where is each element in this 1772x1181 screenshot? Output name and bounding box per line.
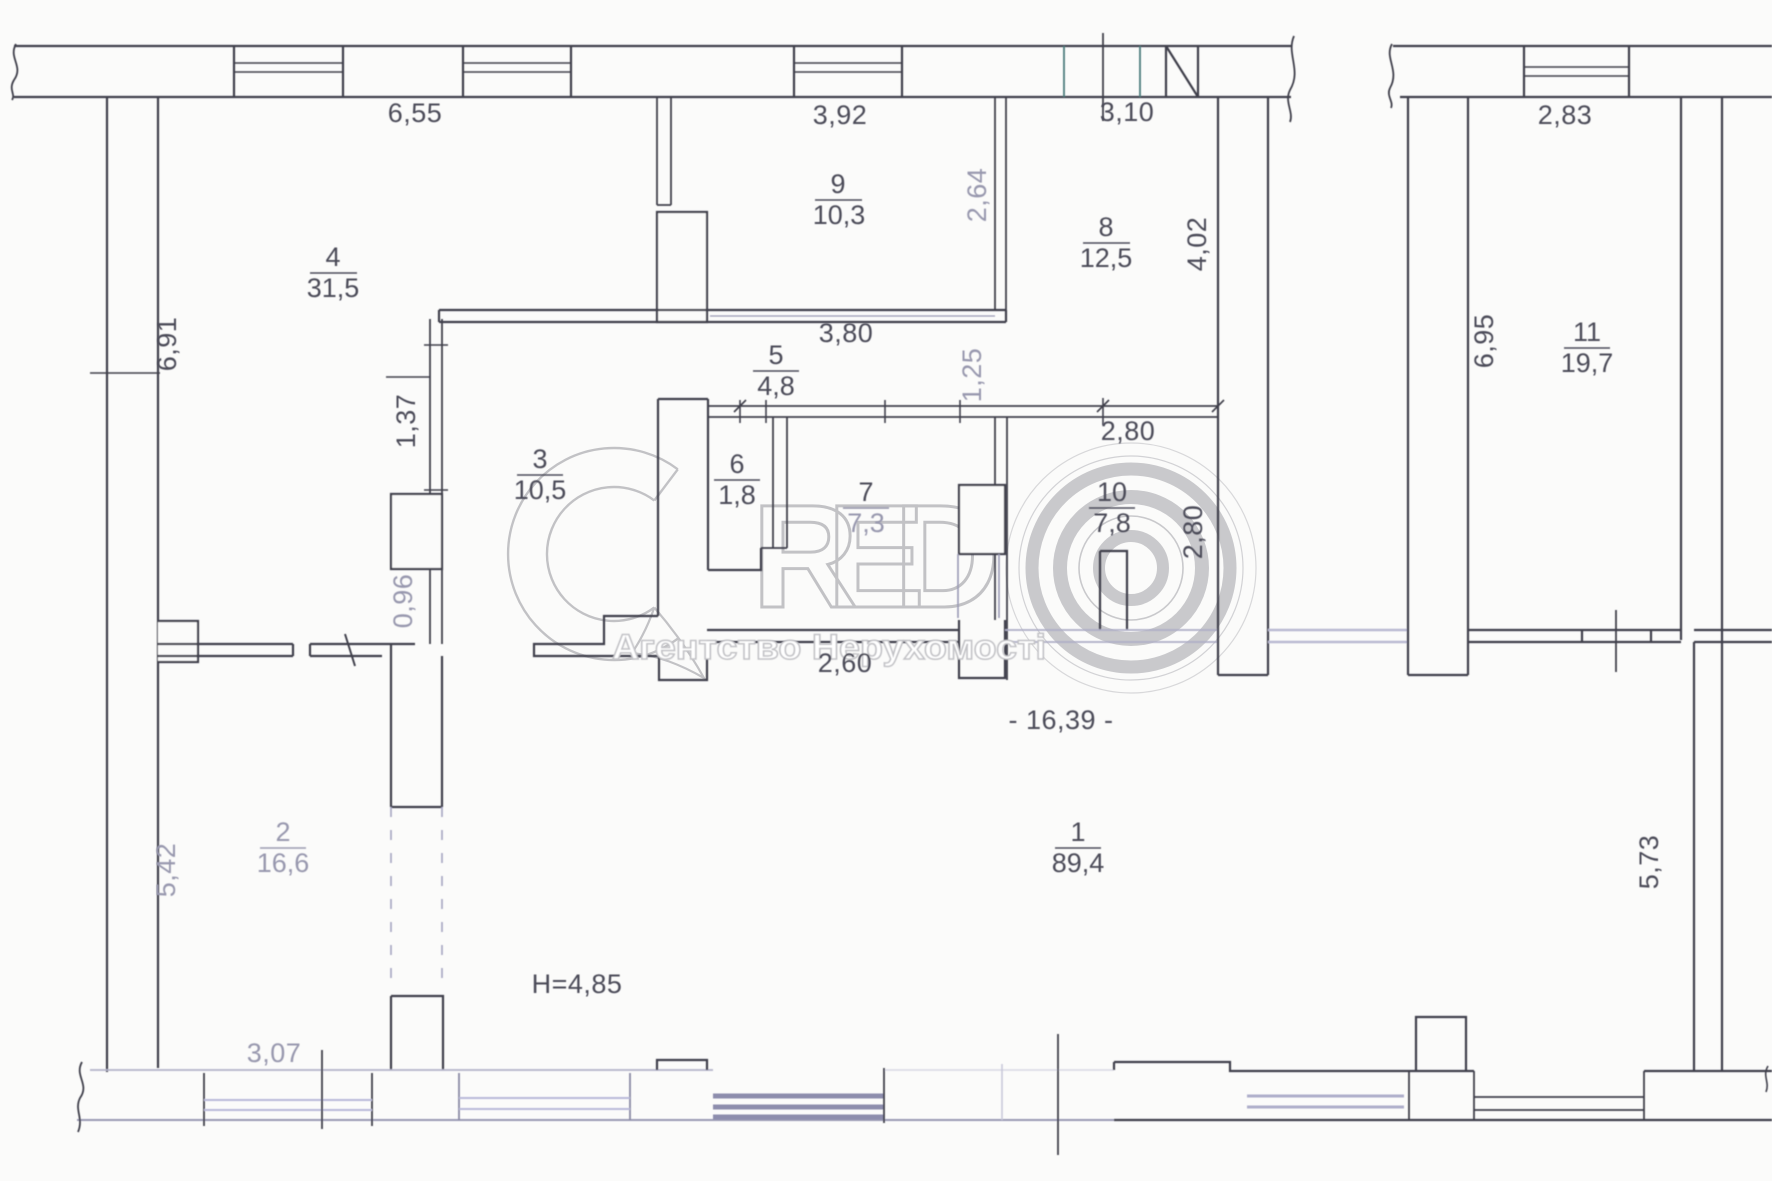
svg-text:11: 11 bbox=[1573, 317, 1601, 347]
svg-text:3,10: 3,10 bbox=[1100, 97, 1155, 127]
svg-text:1,25: 1,25 bbox=[957, 348, 987, 403]
svg-text:2: 2 bbox=[275, 817, 290, 847]
svg-text:7: 7 bbox=[858, 477, 873, 507]
svg-text:31,5: 31,5 bbox=[307, 273, 360, 303]
svg-text:6,55: 6,55 bbox=[388, 98, 443, 128]
svg-text:6: 6 bbox=[729, 449, 744, 479]
svg-text:3,80: 3,80 bbox=[819, 318, 874, 348]
svg-text:2,83: 2,83 bbox=[1538, 100, 1593, 130]
svg-text:- 16,39 -: - 16,39 - bbox=[1008, 705, 1113, 735]
svg-text:6,91: 6,91 bbox=[152, 317, 182, 372]
svg-text:89,4: 89,4 bbox=[1052, 848, 1105, 878]
svg-text:7,3: 7,3 bbox=[847, 508, 885, 538]
svg-text:4,8: 4,8 bbox=[757, 371, 795, 401]
svg-text:2,80: 2,80 bbox=[1178, 505, 1208, 560]
svg-text:3: 3 bbox=[532, 444, 547, 474]
svg-text:12,5: 12,5 bbox=[1080, 243, 1133, 273]
svg-text:2,80: 2,80 bbox=[1101, 416, 1156, 446]
svg-text:0,96: 0,96 bbox=[388, 574, 418, 629]
svg-text:6,95: 6,95 bbox=[1469, 314, 1499, 369]
svg-text:7,8: 7,8 bbox=[1093, 508, 1131, 538]
svg-text:1,8: 1,8 bbox=[718, 480, 756, 510]
svg-text:5,42: 5,42 bbox=[151, 843, 181, 898]
svg-text:2,64: 2,64 bbox=[962, 168, 992, 223]
svg-text:10,5: 10,5 bbox=[514, 475, 567, 505]
svg-text:8: 8 bbox=[1098, 212, 1113, 242]
svg-text:4,02: 4,02 bbox=[1182, 217, 1212, 272]
svg-text:5: 5 bbox=[768, 340, 783, 370]
svg-text:5,73: 5,73 bbox=[1634, 835, 1664, 890]
svg-text:16,6: 16,6 bbox=[257, 848, 310, 878]
svg-text:H=4,85: H=4,85 bbox=[532, 969, 623, 999]
svg-text:3,92: 3,92 bbox=[813, 100, 868, 130]
svg-text:4: 4 bbox=[325, 242, 340, 272]
svg-text:2,60: 2,60 bbox=[818, 648, 873, 678]
svg-text:10: 10 bbox=[1097, 477, 1127, 507]
svg-text:9: 9 bbox=[830, 169, 845, 199]
svg-text:19,7: 19,7 bbox=[1561, 348, 1614, 378]
svg-text:1: 1 bbox=[1070, 817, 1085, 847]
svg-text:3,07: 3,07 bbox=[247, 1038, 302, 1068]
svg-text:1,37: 1,37 bbox=[391, 394, 421, 449]
svg-text:10,3: 10,3 bbox=[813, 200, 866, 230]
